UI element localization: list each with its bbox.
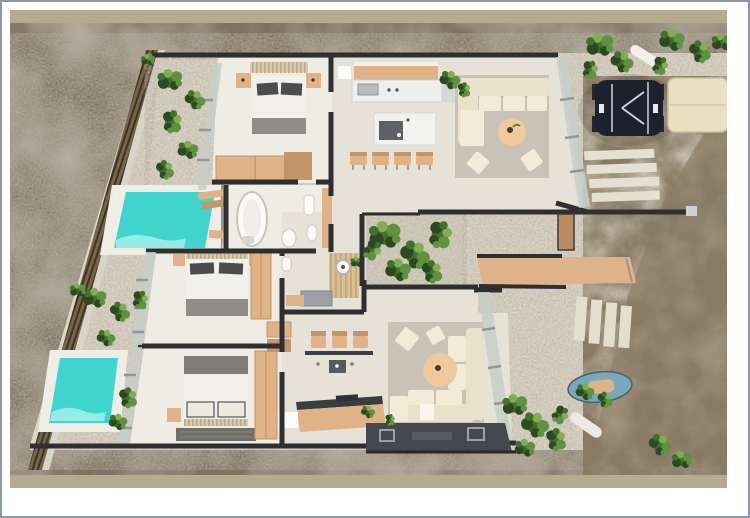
living-room (455, 75, 550, 178)
entry-door (558, 214, 574, 250)
render-canvas (0, 0, 750, 518)
pergola-roof (477, 256, 636, 287)
floorplan-render-photo (0, 0, 750, 518)
second-lounge (388, 322, 484, 424)
carport-canopy (668, 78, 728, 132)
terrace-platform (366, 423, 516, 452)
vintage-car (592, 80, 664, 136)
bedroom-2 (173, 253, 271, 319)
